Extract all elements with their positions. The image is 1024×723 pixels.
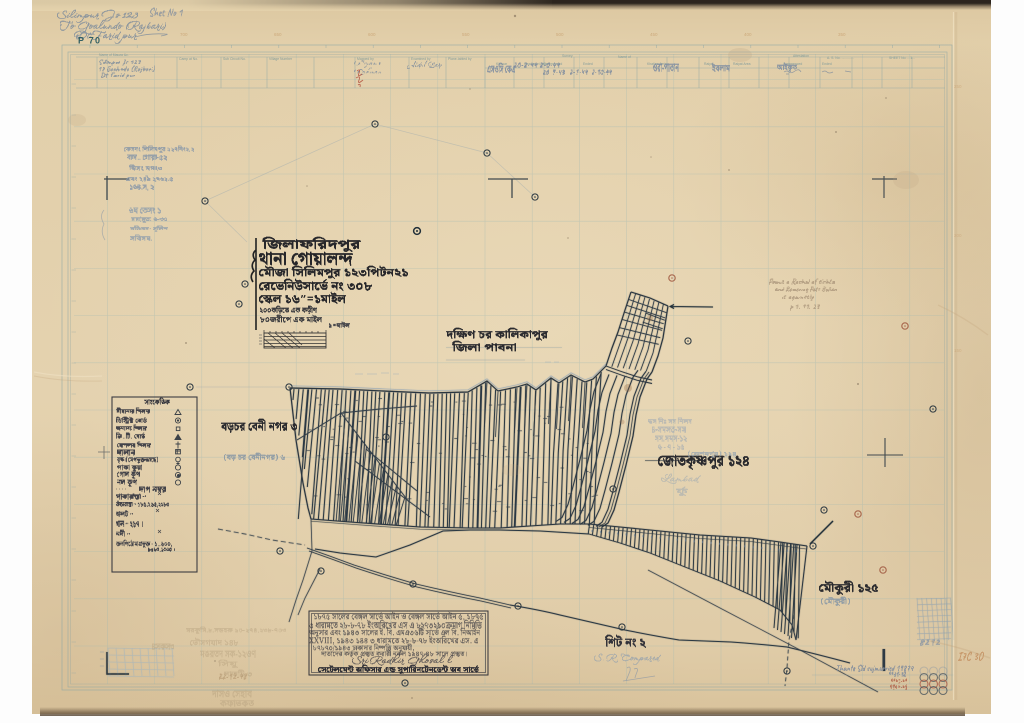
svg-text:350: 350 (838, 32, 846, 37)
svg-text:Raiyat Area: Raiyat Area (733, 62, 751, 66)
svg-text:Sub Circuit No.: Sub Circuit No. (223, 57, 246, 61)
svg-text:Ended: Ended (583, 62, 593, 66)
svg-text:Attestation: Attestation (793, 54, 809, 58)
svg-text:650: 650 (274, 32, 282, 37)
svg-text:Plane-tabled by: Plane-tabled by (448, 57, 472, 61)
svg-text:600: 600 (368, 32, 376, 37)
svg-text:400: 400 (744, 32, 752, 37)
svg-text:500: 500 (556, 32, 564, 37)
svg-text:Survey: Survey (562, 54, 573, 58)
svg-text:Name of: Name of (618, 55, 631, 59)
svg-text:450: 450 (650, 32, 658, 37)
svg-text:A. S. No. .............: A. S. No. ............. (827, 56, 854, 60)
svg-text:Village Number: Village Number (269, 57, 293, 61)
svg-text:Examined by: Examined by (411, 57, 431, 61)
svg-text:Camp at No.: Camp at No. (179, 57, 198, 61)
svg-text:700: 700 (180, 32, 188, 37)
svg-text:Ended: Ended (822, 62, 832, 66)
svg-text:P 70: P 70 (78, 36, 101, 46)
svg-text:550: 550 (462, 32, 470, 37)
svg-text:Name of Mauza &c.: Name of Mauza &c. (99, 53, 129, 57)
svg-text:SHEET No. ...1...: SHEET No. ...1... (889, 56, 915, 60)
svg-text:Mapped by: Mapped by (357, 57, 374, 61)
